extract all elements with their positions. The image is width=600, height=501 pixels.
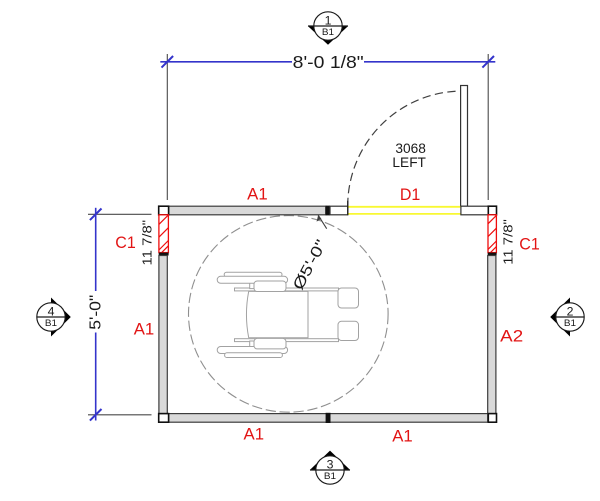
svg-text:4: 4 <box>48 304 55 318</box>
svg-text:B1: B1 <box>45 318 57 328</box>
svg-text:LEFT: LEFT <box>392 155 426 170</box>
svg-text:B1: B1 <box>564 318 576 328</box>
svg-text:8'-0 1/8": 8'-0 1/8" <box>293 52 364 72</box>
svg-text:A2: A2 <box>500 326 523 345</box>
svg-text:3068: 3068 <box>395 141 426 156</box>
svg-text:1: 1 <box>325 13 332 27</box>
svg-text:11 7/8": 11 7/8" <box>139 219 154 265</box>
svg-text:C1: C1 <box>115 233 136 252</box>
svg-text:D1: D1 <box>400 185 421 204</box>
svg-text:B1: B1 <box>322 27 334 37</box>
svg-text:A1: A1 <box>392 426 413 445</box>
svg-text:11 7/8": 11 7/8" <box>500 219 515 265</box>
svg-text:5'-0": 5'-0" <box>88 295 105 330</box>
svg-text:A1: A1 <box>244 425 265 444</box>
svg-text:C1: C1 <box>519 234 540 253</box>
svg-text:2: 2 <box>567 304 574 318</box>
svg-text:A1: A1 <box>134 320 155 339</box>
svg-text:3: 3 <box>327 457 334 471</box>
svg-text:A1: A1 <box>247 184 268 203</box>
svg-text:B1: B1 <box>324 471 336 481</box>
